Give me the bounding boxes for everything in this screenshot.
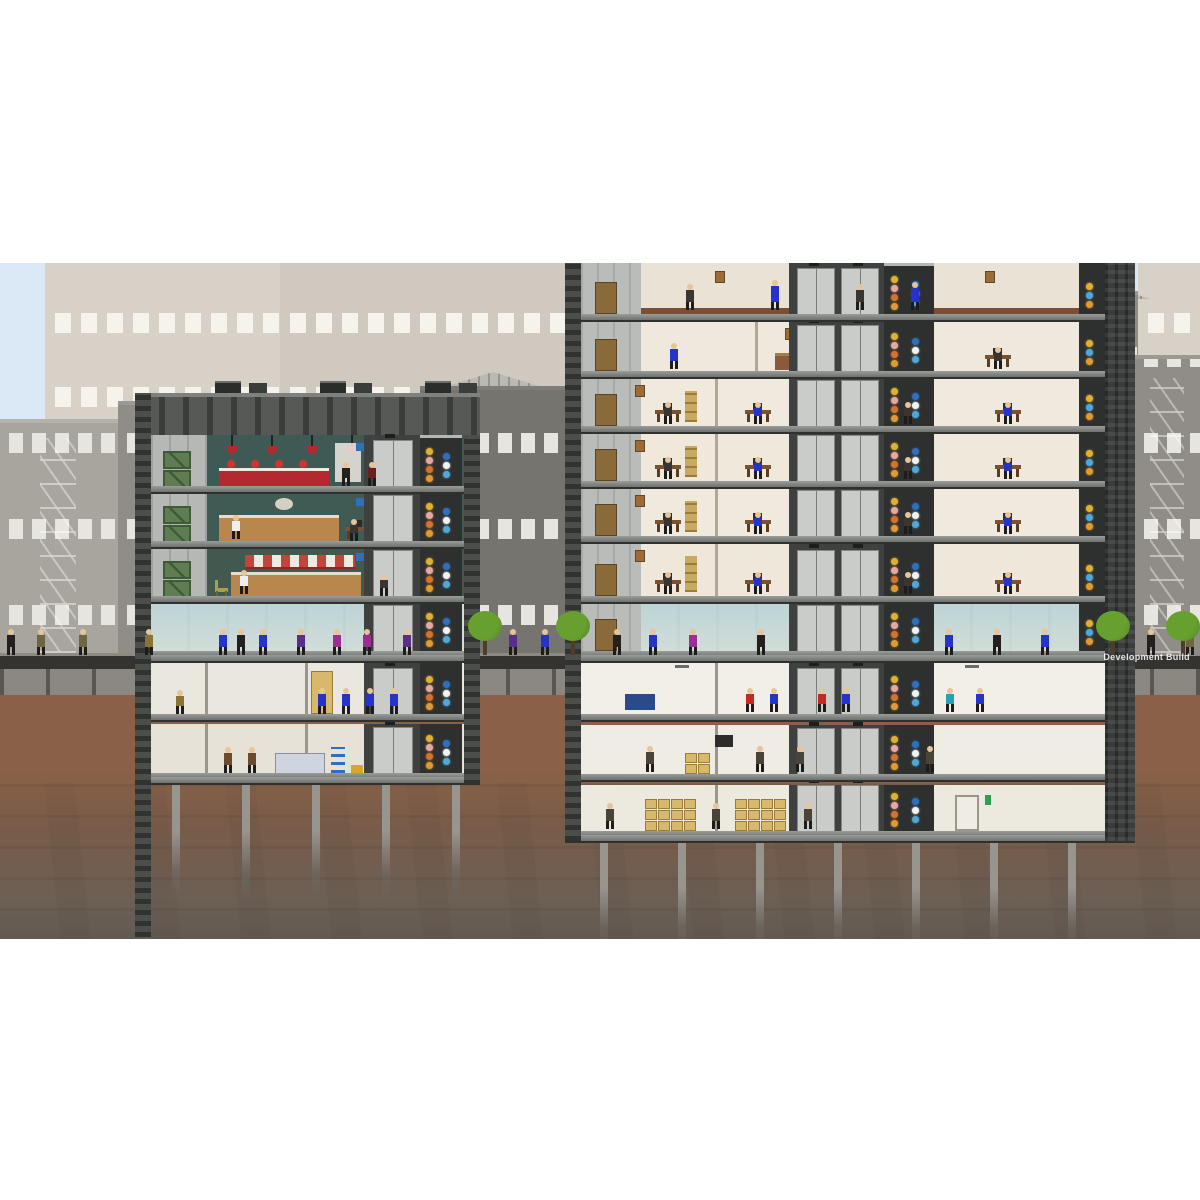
office-shelf — [685, 391, 697, 422]
utility-light — [426, 694, 433, 701]
person-body — [368, 468, 376, 478]
floor-slab — [135, 596, 480, 604]
utility-light — [891, 516, 898, 523]
stair-door — [595, 449, 617, 481]
utility-light — [891, 498, 898, 505]
office-worker — [1003, 402, 1013, 424]
office-floor-7[interactable] — [565, 263, 1135, 318]
utility-light — [443, 581, 450, 588]
person-body — [664, 578, 672, 586]
blue-figure — [769, 688, 779, 712]
workshop-worker — [755, 746, 765, 772]
person-leg — [804, 821, 807, 829]
person-leg — [224, 765, 227, 773]
desk-leg — [997, 414, 1000, 422]
person-leg — [1009, 586, 1012, 594]
person-body — [994, 353, 1002, 361]
person-body — [380, 580, 388, 588]
person-body — [976, 694, 984, 704]
supply-crate — [163, 451, 191, 469]
person-leg — [775, 704, 778, 712]
person-leg — [248, 765, 251, 773]
storage-box — [761, 821, 773, 831]
red-figure — [745, 688, 755, 712]
utility-light — [443, 453, 450, 460]
person-leg — [976, 704, 979, 712]
utility-light — [443, 618, 450, 625]
person-body — [664, 408, 672, 416]
blue-figure — [975, 688, 985, 712]
foundation-pile — [834, 841, 842, 939]
right-tower[interactable] — [565, 263, 1135, 841]
utility-light — [912, 690, 919, 697]
elevator-indicator — [853, 722, 863, 726]
utility-light — [891, 351, 898, 358]
person-leg — [847, 704, 850, 712]
storage-box — [748, 821, 760, 831]
utility-light — [891, 342, 898, 349]
wall-picture — [635, 385, 645, 397]
wall-picture — [635, 550, 645, 562]
floor-slab — [565, 481, 1135, 489]
floor-slab — [565, 714, 1135, 722]
utility-light — [891, 763, 898, 770]
elevator-door — [797, 325, 835, 373]
person-leg — [946, 704, 949, 712]
storage-box — [658, 821, 670, 831]
stair-door — [595, 504, 617, 536]
person-leg — [994, 361, 997, 369]
person-leg — [776, 302, 779, 310]
restaurant-floor[interactable] — [135, 490, 480, 545]
utility-light — [1086, 620, 1093, 627]
person-leg — [916, 302, 919, 310]
desk-leg — [1016, 414, 1019, 422]
office-worker — [753, 512, 763, 534]
utility-light — [426, 744, 433, 751]
utility-light — [1086, 283, 1093, 290]
lobby-floor[interactable] — [565, 600, 1135, 655]
person-leg — [754, 471, 757, 479]
office-floor-6[interactable] — [565, 318, 1135, 375]
utility-light — [912, 636, 919, 643]
person-leg — [951, 704, 954, 712]
desk-leg — [766, 524, 769, 532]
person-body — [224, 753, 232, 765]
stair-door — [595, 394, 617, 426]
utility-light — [426, 530, 433, 537]
diner-counter — [231, 572, 361, 599]
wall-picture — [635, 440, 645, 452]
person-leg — [245, 586, 248, 594]
floor-slab — [565, 371, 1135, 379]
basement-room-wall — [715, 663, 718, 718]
elevator-door — [797, 550, 835, 598]
diner-awning — [245, 555, 355, 569]
utility-light — [912, 618, 919, 625]
person-leg — [240, 586, 243, 594]
person-leg — [380, 588, 383, 596]
basement-1[interactable] — [135, 663, 480, 718]
worker — [175, 690, 185, 714]
utility-light — [891, 576, 898, 583]
person-body — [366, 694, 374, 706]
person-leg — [229, 765, 232, 773]
elevator-door — [797, 380, 835, 428]
utility-light — [443, 526, 450, 533]
utility-light — [1086, 404, 1093, 411]
utility-light — [891, 303, 898, 310]
desk-leg — [747, 584, 750, 592]
office-wall — [715, 540, 718, 600]
toolbox — [351, 765, 363, 773]
utility-light — [443, 690, 450, 697]
person-body — [754, 518, 762, 526]
utility-light — [912, 807, 919, 814]
basement-2[interactable] — [135, 724, 480, 777]
elevator-indicator — [809, 263, 819, 266]
floor-sign — [356, 553, 364, 561]
storage-box — [645, 799, 657, 809]
person-leg — [759, 471, 762, 479]
office-walker — [910, 282, 920, 310]
elevator-door — [797, 668, 835, 716]
cook — [239, 570, 249, 594]
person-leg — [669, 526, 672, 534]
utility-light — [912, 347, 919, 354]
floor-slab — [565, 314, 1135, 322]
utility-light — [912, 521, 919, 528]
office-worker — [903, 512, 913, 534]
utility-light — [891, 470, 898, 477]
elevator-door-split — [393, 441, 394, 487]
lobby-glass-curtain-wall — [151, 600, 364, 655]
storage-box — [748, 810, 760, 820]
left-tower[interactable] — [135, 381, 480, 903]
utility-light — [891, 525, 898, 532]
utility-light — [1086, 340, 1093, 347]
desk-leg — [766, 414, 769, 422]
office-wall — [715, 485, 718, 540]
person-body — [318, 694, 326, 706]
office-floor-3[interactable] — [565, 485, 1135, 540]
person-leg — [801, 764, 804, 772]
person-leg — [1004, 526, 1007, 534]
stair-door — [595, 282, 617, 314]
elevator-door — [797, 435, 835, 483]
person-body — [646, 752, 654, 764]
elevator-door-split — [860, 381, 861, 427]
person-leg — [355, 533, 358, 541]
fire-escape — [40, 438, 76, 653]
office-floor-2[interactable] — [565, 540, 1135, 600]
person-body — [904, 578, 912, 586]
lobby-glass-curtain-wall — [641, 600, 789, 655]
diner-floor[interactable] — [135, 545, 480, 600]
person-leg — [664, 586, 667, 594]
office-worker — [753, 402, 763, 424]
utility-light — [443, 508, 450, 515]
utility-light — [1086, 349, 1093, 356]
desk-leg — [657, 414, 660, 422]
utility-light — [891, 443, 898, 450]
utility-light — [891, 622, 898, 629]
exit-sign — [985, 795, 991, 805]
person-leg — [926, 764, 929, 772]
blue-desk — [625, 694, 655, 710]
suite-wall — [755, 318, 758, 375]
person-leg — [756, 764, 759, 772]
utility-light — [1086, 583, 1093, 590]
utility-light — [891, 745, 898, 752]
utility-light — [891, 360, 898, 367]
elevator-door — [841, 490, 879, 538]
hanging-lamp-shade — [267, 446, 277, 454]
utility-light — [1086, 523, 1093, 530]
utility-light — [891, 558, 898, 565]
floor-slab — [135, 486, 480, 494]
workshop-worker — [247, 747, 257, 773]
basement-1[interactable] — [565, 663, 1135, 718]
person-leg — [909, 416, 912, 424]
person-leg — [669, 416, 672, 424]
office-walker — [770, 280, 780, 310]
utility-light — [891, 285, 898, 292]
person-leg — [909, 526, 912, 534]
utility-light — [1086, 292, 1093, 299]
person-leg — [342, 478, 345, 486]
utility-light — [912, 681, 919, 688]
utility-light — [891, 811, 898, 818]
visitor — [669, 343, 679, 369]
utility-light — [1086, 468, 1093, 475]
elevator-door-split — [816, 491, 817, 537]
desk-leg — [1016, 524, 1019, 532]
utility-light — [891, 333, 898, 340]
utility-light — [891, 694, 898, 701]
utility-light — [1086, 629, 1093, 636]
elevator-door-split — [393, 606, 394, 652]
bar-stool — [227, 460, 235, 468]
utility-light — [891, 736, 898, 743]
elevator-door — [841, 728, 879, 776]
floor-slab — [135, 777, 480, 785]
person-body — [686, 290, 694, 302]
storage-box — [735, 799, 747, 809]
storage-box — [685, 764, 697, 774]
office-shelf — [685, 556, 697, 592]
utility-light — [443, 563, 450, 570]
office-floor-4[interactable] — [565, 430, 1135, 485]
utility-light — [1086, 565, 1093, 572]
chef — [231, 515, 241, 539]
person-body — [664, 518, 672, 526]
utility-light — [912, 627, 919, 634]
foundation-pile — [678, 841, 686, 939]
person-body — [756, 752, 764, 764]
person-leg — [754, 416, 757, 424]
elevator-door-split — [860, 669, 861, 715]
utility-light — [891, 567, 898, 574]
utility-light — [426, 735, 433, 742]
basement-3[interactable] — [565, 785, 1135, 835]
utility-light — [426, 576, 433, 583]
person-leg — [904, 471, 907, 479]
foundation-pile — [990, 841, 998, 939]
supply-crate — [163, 561, 191, 579]
person-leg — [181, 706, 184, 714]
desk-leg — [676, 584, 679, 592]
utility-light — [891, 631, 898, 638]
utility-light — [891, 388, 898, 395]
desk-leg — [657, 584, 660, 592]
elevator-indicator — [853, 263, 863, 266]
foundation-pile — [756, 841, 764, 939]
utility-light — [912, 356, 919, 363]
person-leg — [347, 706, 350, 714]
person-body — [754, 408, 762, 416]
elevator-indicator — [809, 544, 819, 548]
person-body — [1004, 463, 1012, 471]
storage-box — [645, 810, 657, 820]
person-leg — [342, 706, 345, 714]
person-body — [1004, 518, 1012, 526]
elevator-door — [841, 380, 879, 428]
person-leg — [318, 706, 321, 714]
utility-light — [426, 567, 433, 574]
utility-light — [443, 758, 450, 765]
storage-worker — [605, 803, 615, 829]
storage-box — [671, 810, 683, 820]
person-leg — [751, 704, 754, 712]
utility-light — [426, 753, 433, 760]
hanging-lamp-shade — [227, 446, 237, 454]
person-leg — [323, 706, 326, 714]
person-leg — [691, 302, 694, 310]
utility-light — [912, 750, 919, 757]
menu-sign — [275, 498, 293, 510]
elevator-door — [797, 605, 835, 653]
person-body — [1004, 408, 1012, 416]
utility-light — [1086, 459, 1093, 466]
maintenance-worker — [341, 688, 351, 714]
game-viewport[interactable] — [0, 263, 1200, 939]
person-leg — [675, 361, 678, 369]
utility-light — [912, 816, 919, 823]
utility-light — [912, 503, 919, 510]
floor-sign — [356, 498, 364, 506]
person-leg — [911, 302, 914, 310]
maintenance-worker — [389, 688, 399, 714]
floor-slab — [565, 655, 1135, 663]
bar-stool — [299, 460, 307, 468]
maintenance-worker — [365, 688, 375, 714]
utility-light — [426, 457, 433, 464]
bar-stool — [251, 460, 259, 468]
person-leg — [904, 416, 907, 424]
utility-light — [891, 685, 898, 692]
office-walker — [855, 284, 865, 310]
storage-box — [658, 799, 670, 809]
utility-light — [891, 754, 898, 761]
person-leg — [1009, 416, 1012, 424]
person-leg — [1004, 416, 1007, 424]
red-figure — [817, 688, 827, 712]
office-worker — [1003, 512, 1013, 534]
person-leg — [770, 704, 773, 712]
storage-worker — [711, 803, 721, 829]
utility-light — [912, 402, 919, 409]
basement-2[interactable] — [565, 725, 1135, 778]
storage-box — [735, 810, 747, 820]
utility-light — [443, 699, 450, 706]
person-leg — [1009, 471, 1012, 479]
elevator-door — [841, 325, 879, 373]
utility-light — [891, 613, 898, 620]
elevator-door-split — [860, 491, 861, 537]
storage-box — [774, 821, 786, 831]
utility-light — [912, 338, 919, 345]
person-leg — [823, 704, 826, 712]
person-body — [390, 694, 398, 706]
storage-box — [658, 810, 670, 820]
person-leg — [754, 586, 757, 594]
utility-light — [443, 740, 450, 747]
person-body — [796, 752, 804, 764]
elevator-door-split — [816, 786, 817, 832]
bar-floor[interactable] — [135, 435, 480, 490]
rooftop-vent — [249, 383, 267, 393]
person-leg — [842, 704, 845, 712]
rooftop-vent — [354, 383, 372, 393]
utility-light — [1086, 358, 1093, 365]
person-leg — [809, 821, 812, 829]
watermark-text: Development Build — [1103, 652, 1190, 662]
person-body — [770, 694, 778, 704]
person-leg — [670, 361, 673, 369]
utility-light — [443, 471, 450, 478]
storage-door — [955, 795, 979, 831]
ceiling-lamp — [675, 665, 689, 668]
elevator-door-split — [816, 729, 817, 775]
utility-light — [912, 457, 919, 464]
storage-box — [671, 799, 683, 809]
desk-leg — [1016, 584, 1019, 592]
desk-leg — [657, 469, 660, 477]
elevator-door — [841, 435, 879, 483]
person-leg — [1004, 586, 1007, 594]
elevator-door-split — [860, 436, 861, 482]
lobby-floor[interactable] — [135, 600, 480, 655]
desk-leg — [747, 524, 750, 532]
floor-slab — [565, 596, 1135, 604]
person-leg — [237, 531, 240, 539]
utility-light — [912, 466, 919, 473]
person-leg — [390, 706, 393, 714]
person-body — [342, 694, 350, 706]
person-body — [248, 753, 256, 765]
utility-light — [912, 393, 919, 400]
person-body — [746, 694, 754, 704]
utility-light — [912, 572, 919, 579]
office-floor-5[interactable] — [565, 375, 1135, 430]
elevator-door — [841, 550, 879, 598]
floor-sign — [356, 443, 364, 451]
person-leg — [796, 764, 799, 772]
utility-riser — [420, 724, 462, 777]
office-worker — [1003, 457, 1013, 479]
steel-frame-column — [464, 435, 480, 785]
